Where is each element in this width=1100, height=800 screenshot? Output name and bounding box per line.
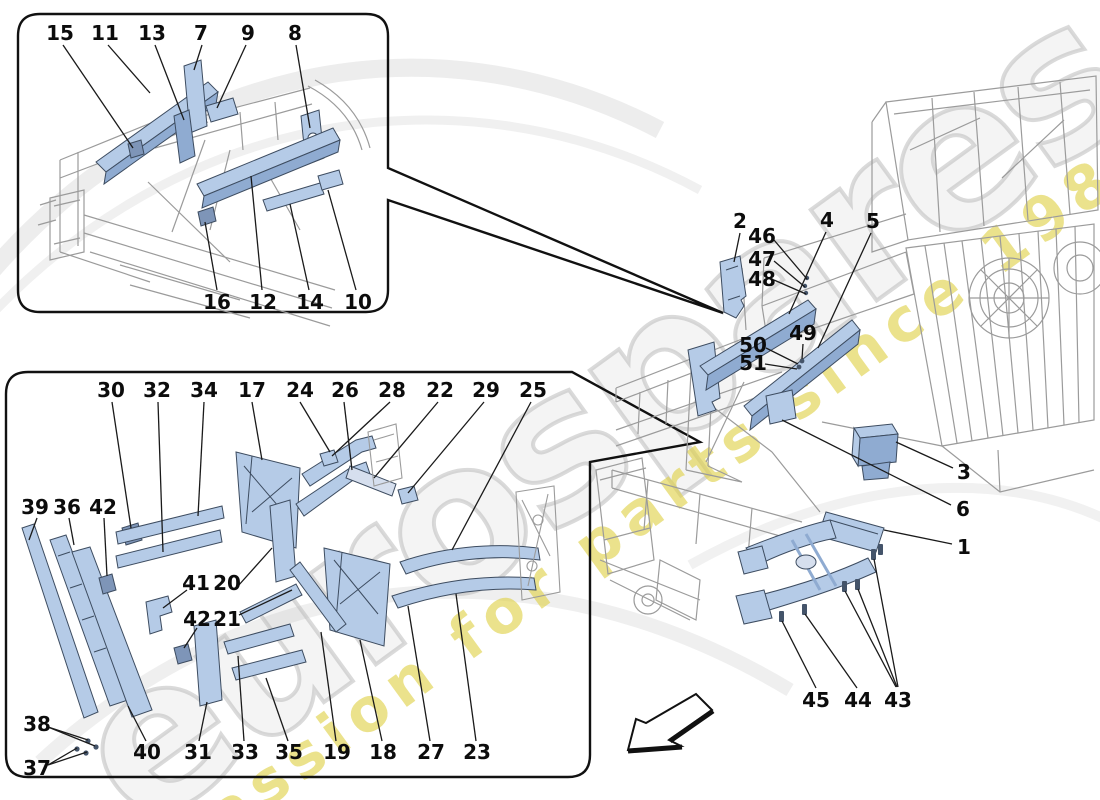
front-direction-arrow-icon xyxy=(628,694,713,751)
part-number-callout-9: 9 xyxy=(241,23,255,43)
part-number-callout-24: 24 xyxy=(286,380,314,400)
part-number-callout-1: 1 xyxy=(957,537,971,557)
part-number-callout-49: 49 xyxy=(789,323,817,343)
part-number-callout-18: 18 xyxy=(369,742,397,762)
part-number-callout-3: 3 xyxy=(957,462,971,482)
part-number-callout-17: 17 xyxy=(238,380,266,400)
part-number-callout-30: 30 xyxy=(97,380,125,400)
part-number-callout-31: 31 xyxy=(184,742,212,762)
part-number-callout-35: 35 xyxy=(275,742,303,762)
parts-diagram-page: eurospares a passion for parts since 198… xyxy=(0,0,1100,800)
part-number-callout-20: 20 xyxy=(213,573,241,593)
front-structure-highlighted-parts xyxy=(96,60,343,226)
part-number-callout-10: 10 xyxy=(344,292,372,312)
part-number-callout-21: 21 xyxy=(213,609,241,629)
part-number-callout-40: 40 xyxy=(133,742,161,762)
part-number-callout-26: 26 xyxy=(331,380,359,400)
part-number-callout-22: 22 xyxy=(426,380,454,400)
part-number-callout-11: 11 xyxy=(91,23,119,43)
part-number-callout-48: 48 xyxy=(748,269,776,289)
part-number-callout-42: 42 xyxy=(89,497,117,517)
part-number-callout-43: 43 xyxy=(884,690,912,710)
part-number-callout-45: 45 xyxy=(802,690,830,710)
part-number-callout-12: 12 xyxy=(249,292,277,312)
part-number-callout-14: 14 xyxy=(296,292,324,312)
part-number-callout-4: 4 xyxy=(820,210,834,230)
part-number-callout-25: 25 xyxy=(519,380,547,400)
part-number-callout-33: 33 xyxy=(231,742,259,762)
part-number-callout-29: 29 xyxy=(472,380,500,400)
part-number-callout-39: 39 xyxy=(21,497,49,517)
part-number-callout-6: 6 xyxy=(956,499,970,519)
part-number-callout-38: 38 xyxy=(23,714,51,734)
part-number-callout-8: 8 xyxy=(288,23,302,43)
part-number-callout-23: 23 xyxy=(463,742,491,762)
part-number-callout-51: 51 xyxy=(739,353,767,373)
part-number-callout-32: 32 xyxy=(143,380,171,400)
part-number-callout-28: 28 xyxy=(378,380,406,400)
part-number-callout-15: 15 xyxy=(46,23,74,43)
part-number-callout-47: 47 xyxy=(748,249,776,269)
part-number-callout-41: 41 xyxy=(182,573,210,593)
part-number-callout-34: 34 xyxy=(190,380,218,400)
exploded-elements-wireframe xyxy=(368,424,560,600)
part-number-callout-7: 7 xyxy=(194,23,208,43)
part-number-callout-37: 37 xyxy=(23,758,51,778)
part-number-callout-42: 42 xyxy=(183,609,211,629)
exploded-elements-parts xyxy=(22,436,540,756)
part-number-callout-16: 16 xyxy=(203,292,231,312)
part-number-callout-27: 27 xyxy=(417,742,445,762)
part-number-callout-5: 5 xyxy=(866,211,880,231)
part-number-callout-36: 36 xyxy=(53,497,81,517)
part-number-callout-13: 13 xyxy=(138,23,166,43)
part-number-callout-19: 19 xyxy=(323,742,351,762)
part-number-callout-46: 46 xyxy=(748,226,776,246)
part-number-callout-2: 2 xyxy=(733,211,747,231)
part-number-callout-44: 44 xyxy=(844,690,872,710)
